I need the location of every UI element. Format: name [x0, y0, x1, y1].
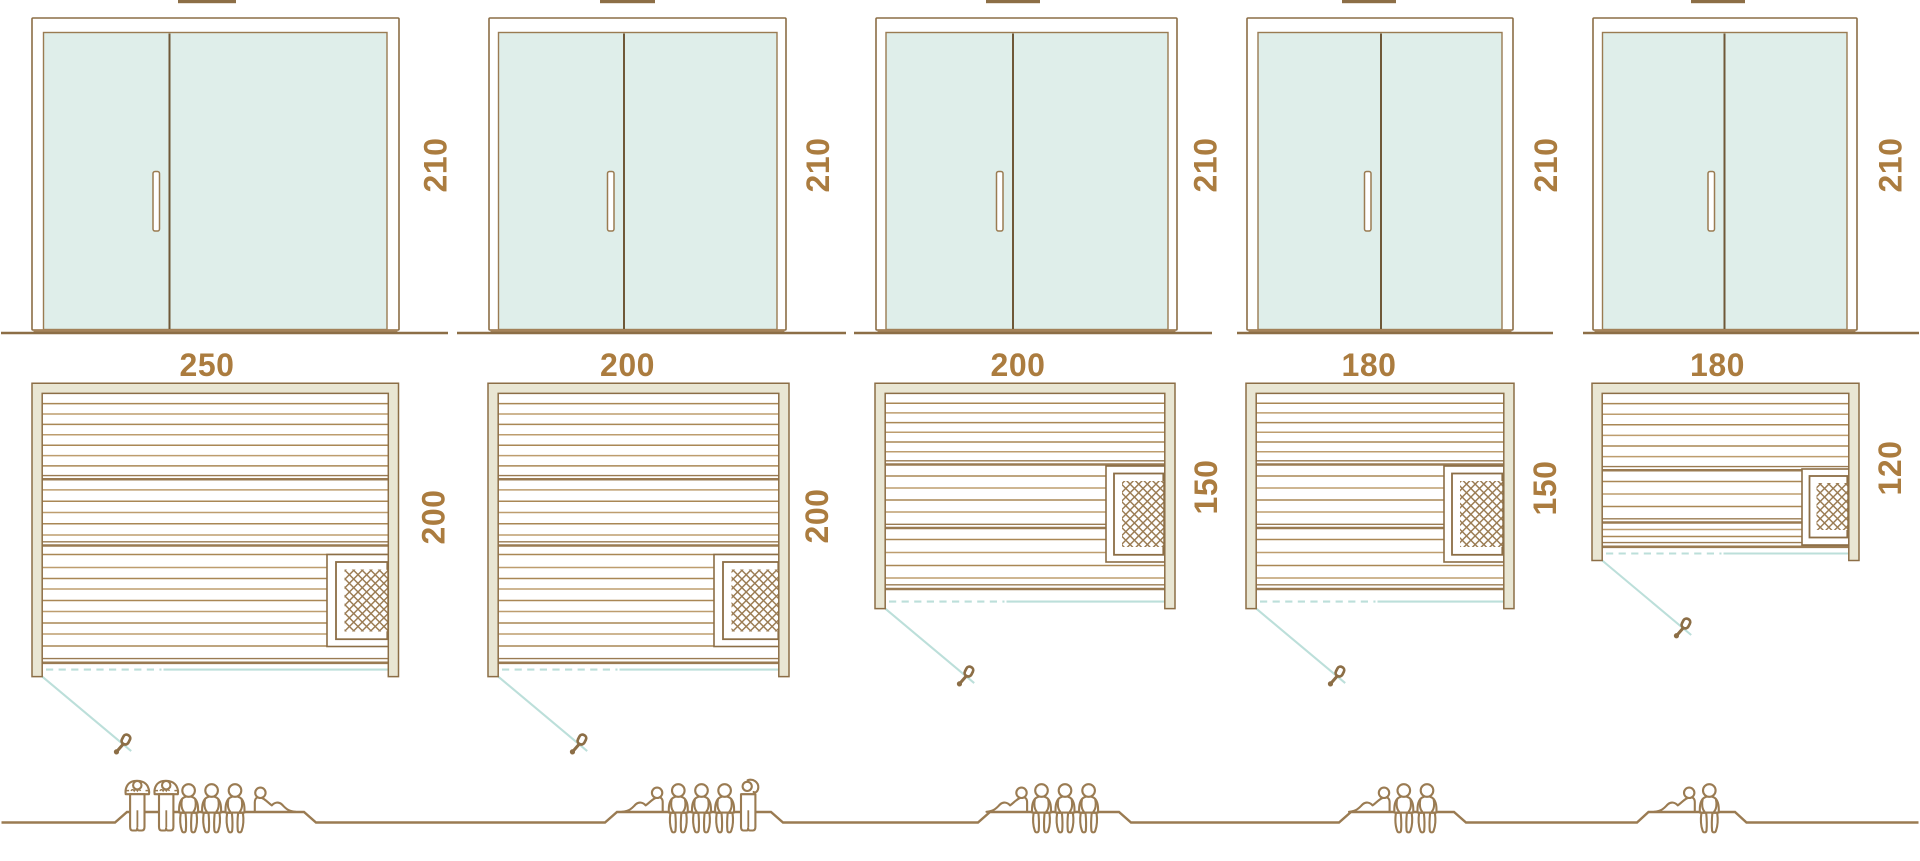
svg-text:210: 210 — [800, 138, 836, 193]
svg-text:210: 210 — [418, 138, 454, 193]
svg-text:210: 210 — [1873, 138, 1909, 193]
svg-text:200: 200 — [799, 489, 835, 544]
svg-text:150: 150 — [1188, 460, 1224, 515]
svg-text:250: 250 — [180, 347, 235, 383]
svg-text:200: 200 — [600, 347, 655, 383]
svg-text:210: 210 — [1188, 138, 1224, 193]
svg-text:150: 150 — [1527, 461, 1563, 516]
svg-text:200: 200 — [416, 490, 452, 545]
svg-text:180: 180 — [1342, 347, 1397, 383]
svg-text:210: 210 — [1528, 138, 1564, 193]
svg-text:180: 180 — [1690, 347, 1745, 383]
svg-text:200: 200 — [991, 347, 1046, 383]
svg-text:120: 120 — [1872, 441, 1908, 496]
